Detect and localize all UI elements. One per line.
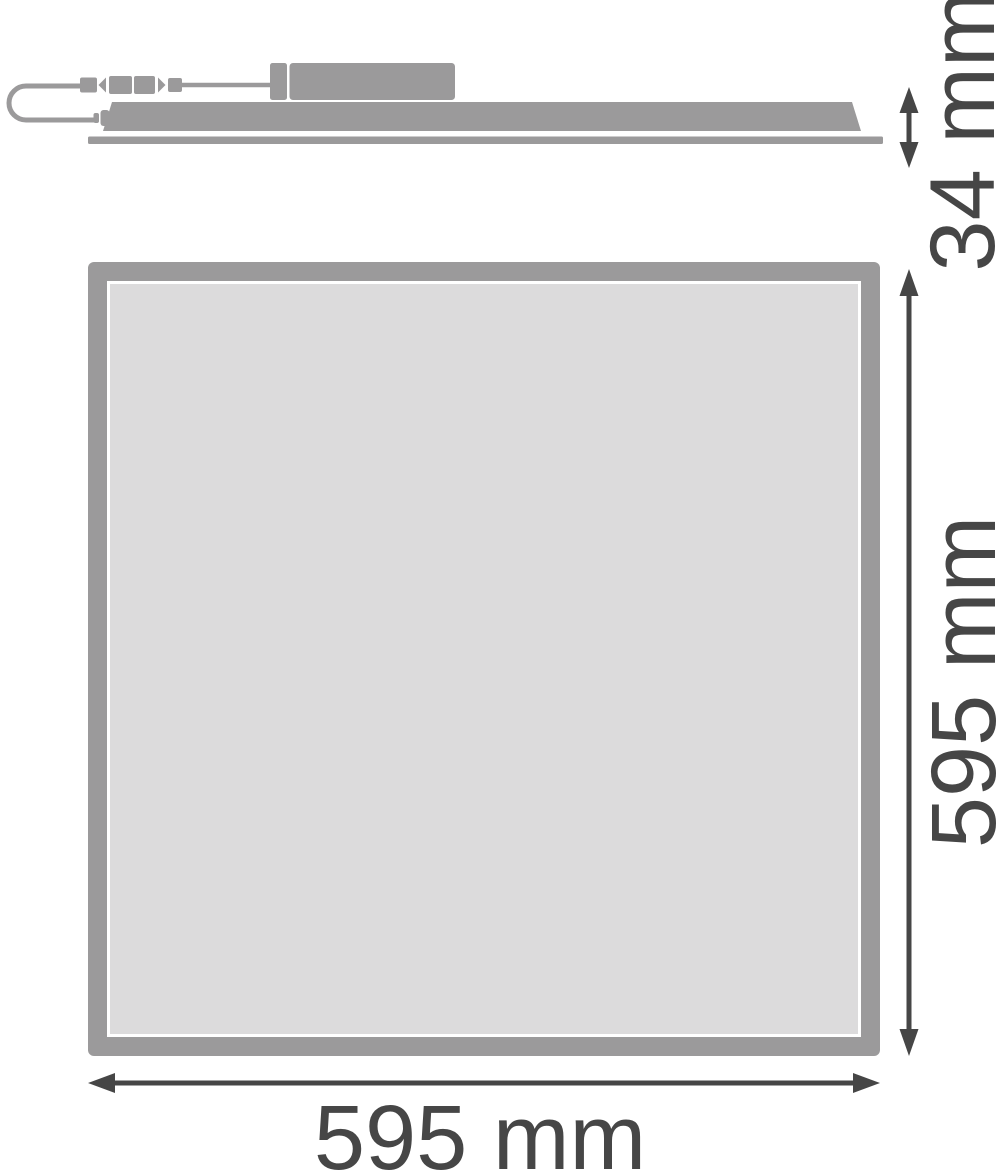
panel-baseplate-profile <box>88 137 883 145</box>
panel-diffuser <box>110 284 858 1034</box>
side-height-dimension-label: 34 mm <box>913 0 1000 331</box>
front-view <box>88 262 919 1093</box>
connector-wedge-left-icon <box>99 78 107 93</box>
inline-cable-connector <box>80 76 182 94</box>
connector-segment <box>80 78 97 93</box>
connector-socket-body <box>134 76 155 94</box>
drawing-canvas <box>0 0 1000 1176</box>
connector-wedge-right-icon <box>158 78 166 93</box>
front-width-dimension-label: 595 mm <box>280 1088 680 1176</box>
luminaire-dimension-drawing: 34 mm 595 mm 595 mm <box>0 0 1000 1176</box>
driver-body <box>290 63 456 100</box>
inlet-tip <box>94 113 100 123</box>
arrowhead-down-icon <box>900 1029 919 1056</box>
arrowhead-left-icon <box>88 1073 115 1093</box>
front-height-dimension-label: 595 mm <box>914 482 1000 882</box>
led-driver-box <box>270 63 455 100</box>
inlet-bushing <box>101 110 110 126</box>
panel-side-profile <box>103 102 861 131</box>
connector-end-segment <box>168 78 182 92</box>
driver-end-cap <box>270 63 287 100</box>
panel-cable-inlet <box>94 110 110 126</box>
side-view <box>9 63 919 168</box>
arrowhead-right-icon <box>853 1073 880 1093</box>
connector-plug-body <box>109 76 132 94</box>
